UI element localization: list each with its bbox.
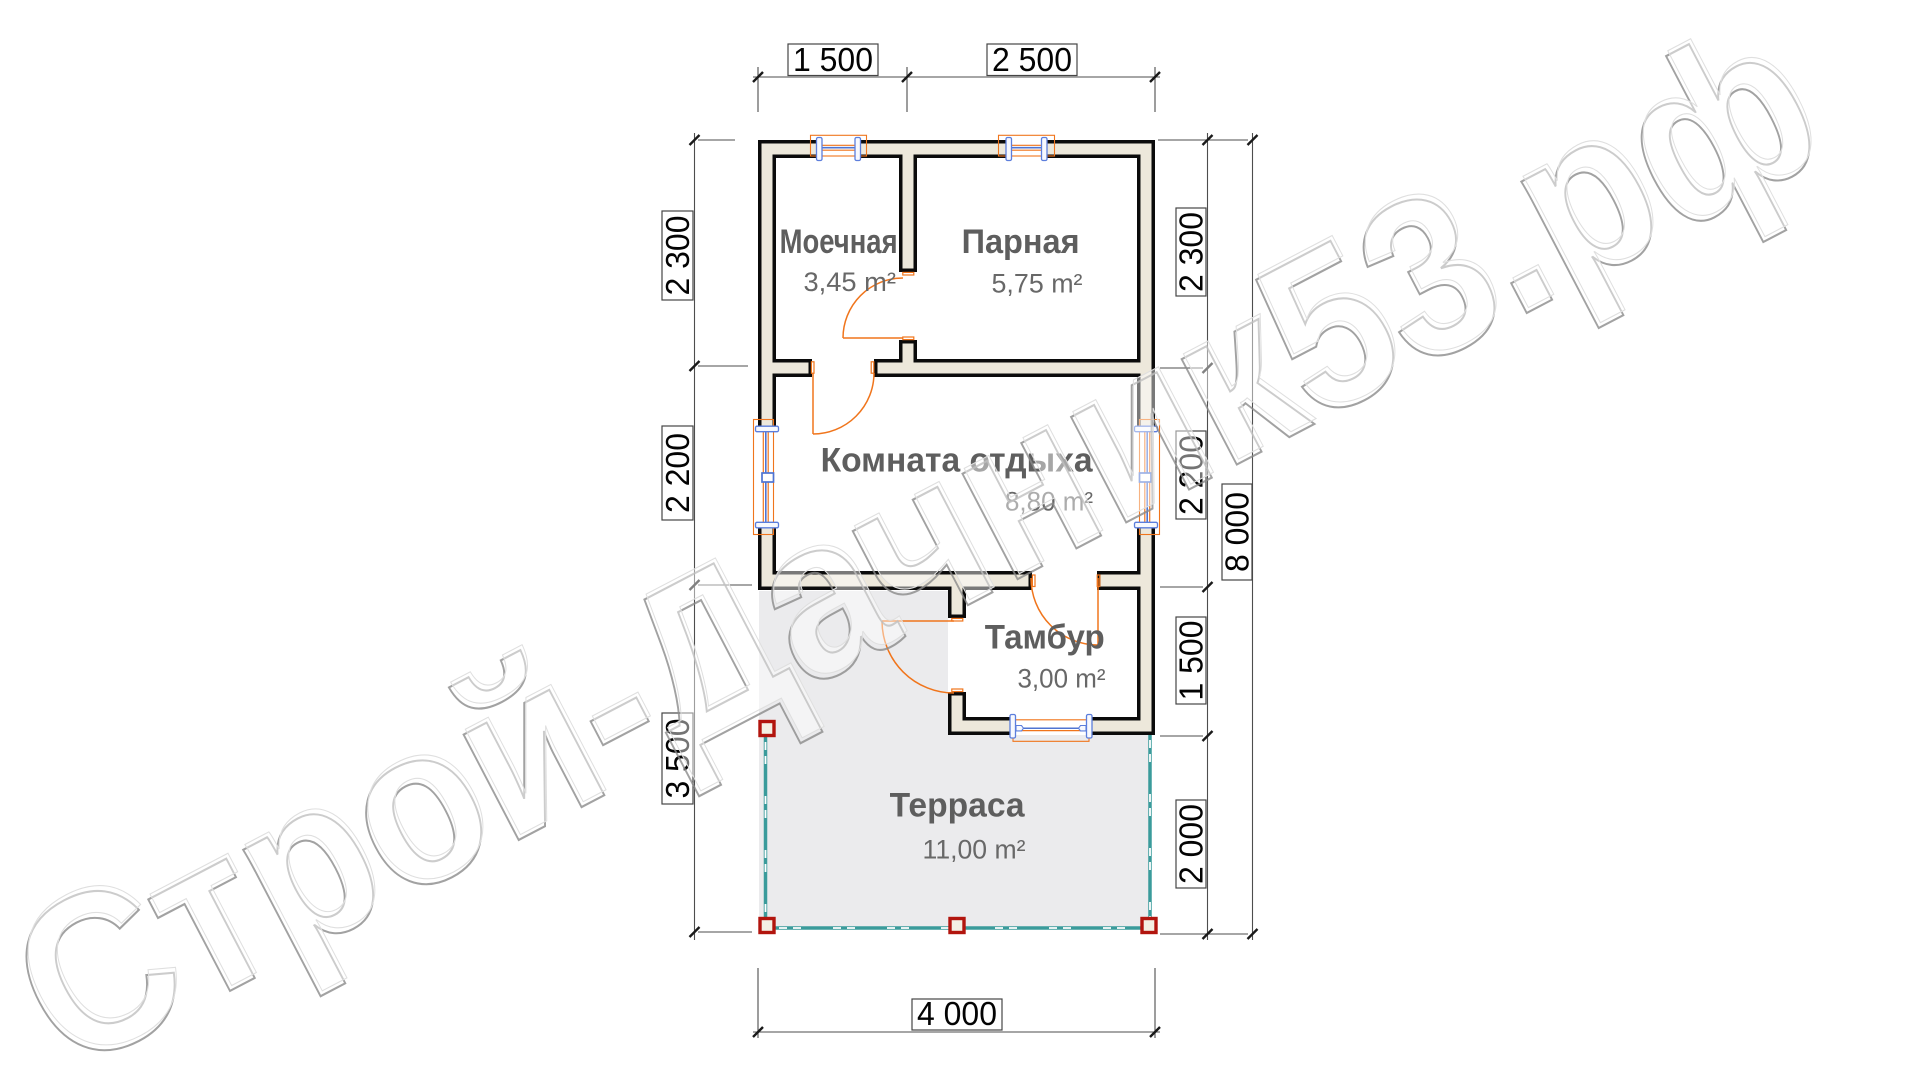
svg-text:2 000: 2 000: [1174, 804, 1211, 884]
svg-text:1 500: 1 500: [1174, 621, 1211, 701]
svg-text:2 200: 2 200: [660, 433, 697, 513]
svg-text:4 000: 4 000: [917, 996, 997, 1033]
svg-text:2 300: 2 300: [660, 216, 697, 296]
svg-text:3,45 m²: 3,45 m²: [804, 267, 897, 297]
svg-text:3,00 m²: 3,00 m²: [1018, 664, 1106, 694]
svg-text:Терраса: Терраса: [890, 787, 1026, 825]
svg-text:11,00 m²: 11,00 m²: [923, 835, 1026, 865]
svg-text:Моечная: Моечная: [780, 223, 898, 261]
svg-text:1 500: 1 500: [793, 42, 873, 79]
svg-text:5,75 m²: 5,75 m²: [992, 269, 1083, 299]
svg-text:2 500: 2 500: [992, 42, 1072, 79]
svg-text:Парная: Парная: [962, 223, 1080, 261]
